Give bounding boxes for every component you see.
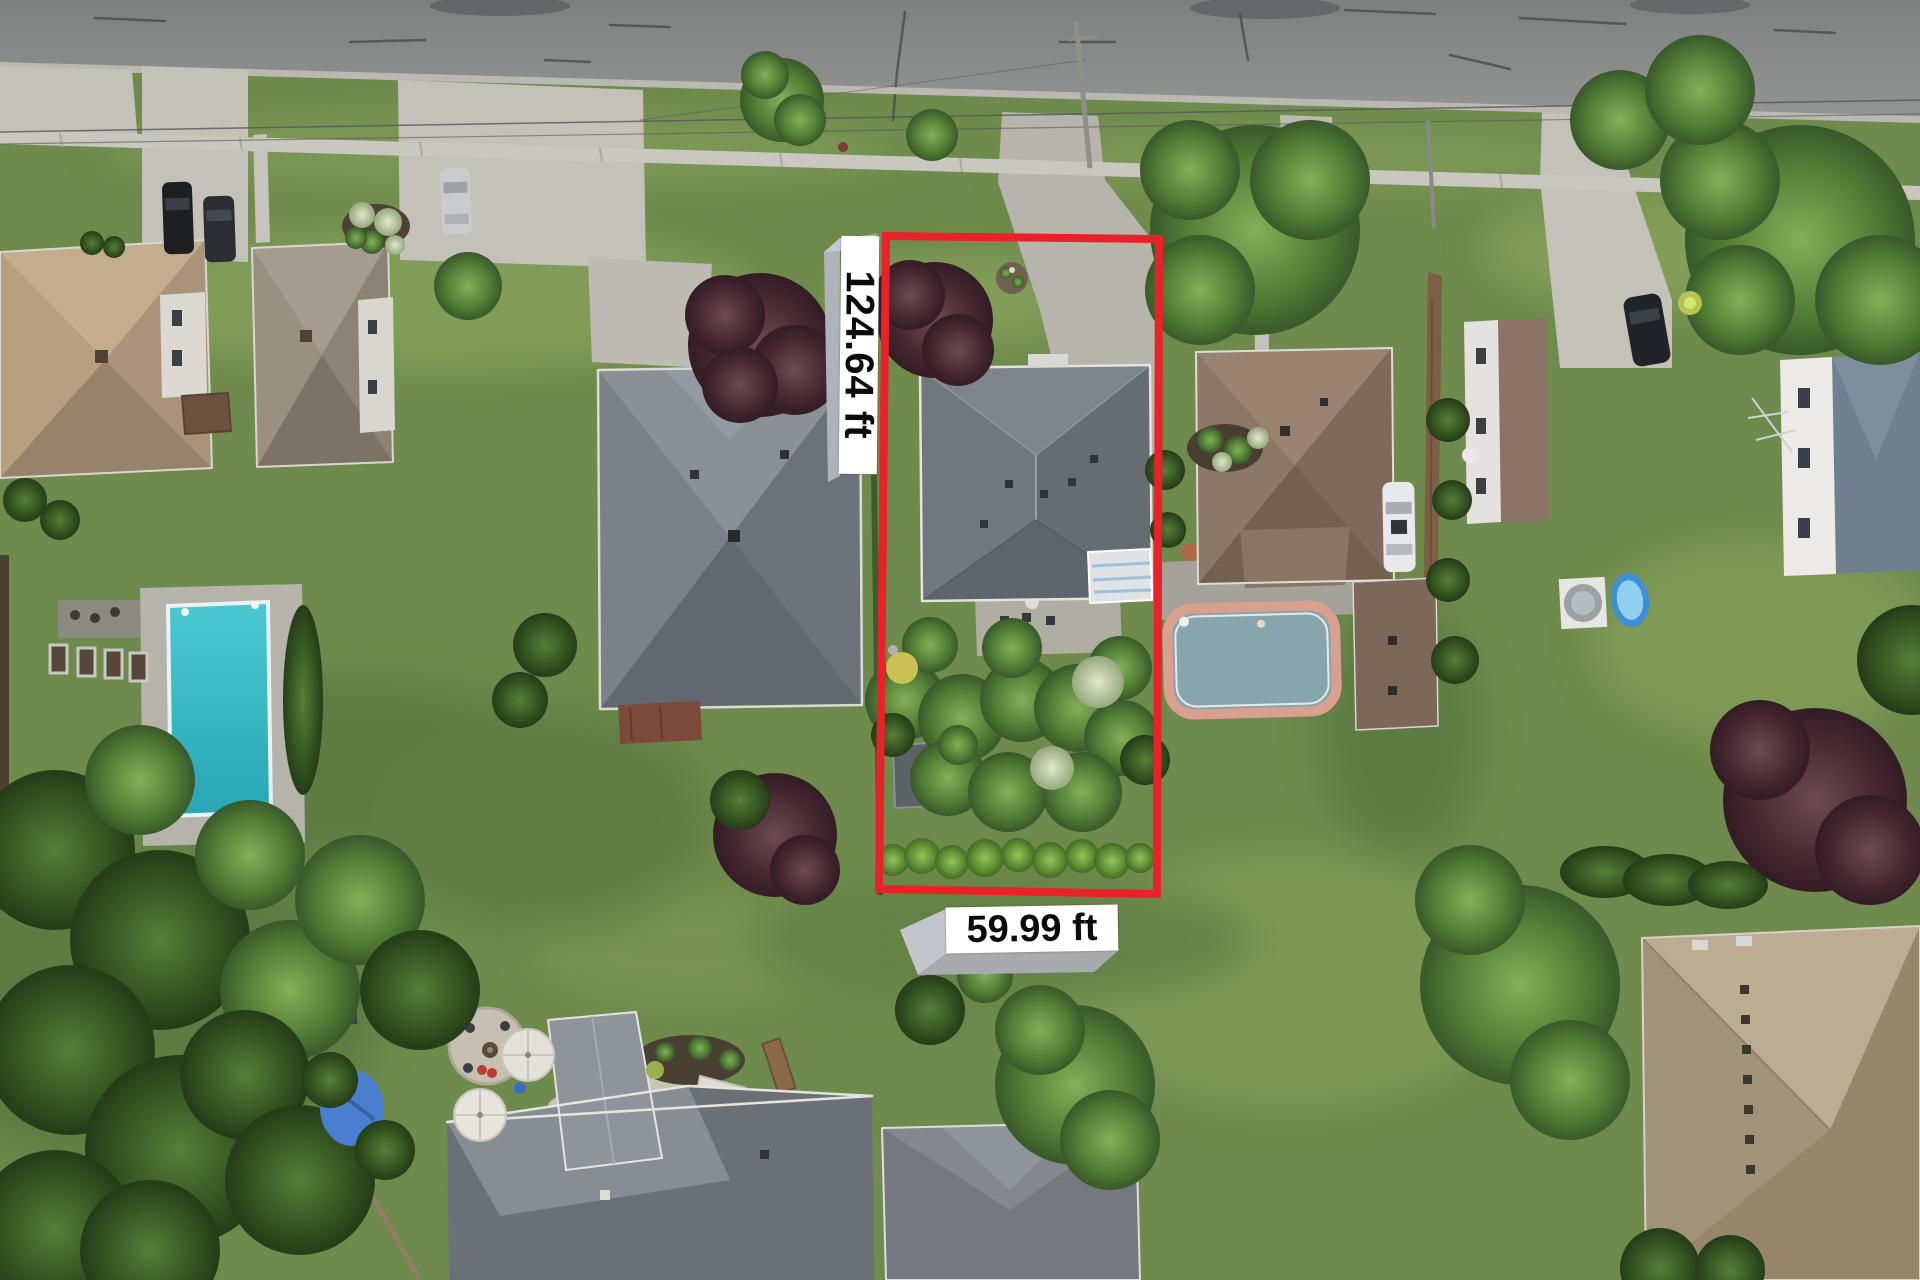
right-pool	[1167, 605, 1338, 715]
garden-shed-left	[182, 393, 231, 434]
car-silver	[440, 167, 472, 234]
house-bottom-right-roof	[1642, 926, 1920, 1280]
lot-width-text: 59.99 ft	[966, 906, 1098, 951]
patio-umbrella-2	[454, 1089, 506, 1141]
car-dark-suv	[203, 195, 236, 262]
house-right-white-roof	[1462, 318, 1549, 524]
patio-umbrella	[502, 1029, 554, 1081]
scene-photo	[0, 0, 1920, 1280]
house-far-left-roof	[0, 240, 212, 478]
lot-depth-label: 124.64 ft	[839, 236, 879, 474]
subject-house-roof	[920, 354, 1152, 603]
house-center-left-roof	[598, 366, 862, 744]
car-black	[162, 181, 194, 254]
sunroom	[1088, 549, 1152, 603]
driveway-second	[398, 80, 646, 268]
car-white	[1382, 482, 1416, 573]
house-second-roof	[252, 242, 395, 467]
rear-addition	[1353, 578, 1438, 730]
lot-width-label: 59.99 ft	[946, 905, 1119, 954]
hedge-left-pool	[283, 605, 323, 795]
aerial-photo-stage: 124.64 ft 59.99 ft	[0, 0, 1920, 1280]
patio-table	[1181, 543, 1199, 561]
fire-hydrant	[838, 142, 848, 152]
lot-depth-text: 124.64 ft	[836, 270, 883, 440]
tree-small-mid	[434, 252, 502, 320]
front-step	[1028, 354, 1068, 367]
